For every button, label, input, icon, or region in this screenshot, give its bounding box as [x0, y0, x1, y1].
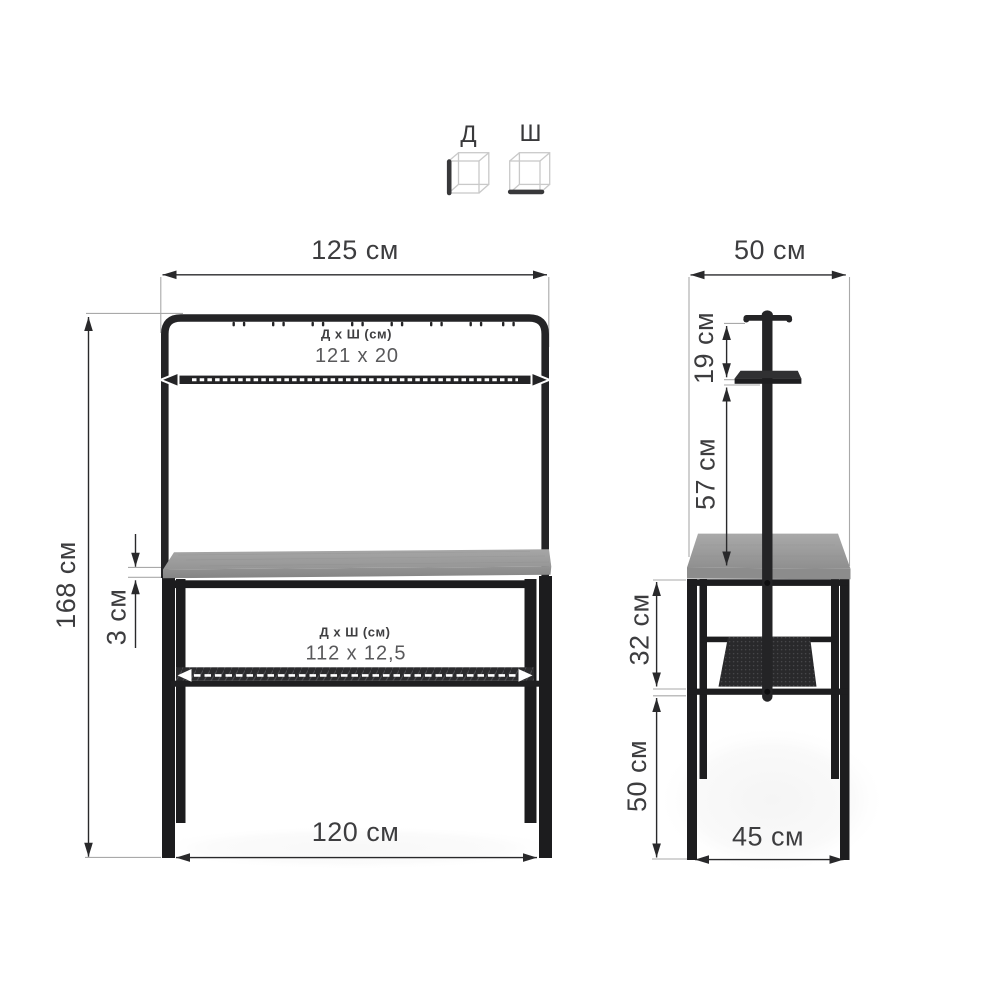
- svg-text:125 см: 125 см: [311, 235, 399, 265]
- svg-text:Д х Ш (см): Д х Ш (см): [320, 624, 391, 639]
- svg-text:120 см: 120 см: [312, 817, 400, 847]
- svg-text:168 см: 168 см: [51, 541, 81, 629]
- svg-text:19 см: 19 см: [689, 312, 719, 384]
- svg-text:50 см: 50 см: [622, 740, 652, 812]
- svg-text:121 x 20: 121 x 20: [315, 345, 399, 367]
- svg-text:50 см: 50 см: [734, 235, 806, 265]
- svg-text:112 x 12,5: 112 x 12,5: [306, 643, 407, 665]
- svg-text:Д х Ш (см): Д х Ш (см): [321, 327, 392, 342]
- svg-text:57 см: 57 см: [691, 438, 721, 510]
- svg-text:Ш: Ш: [520, 120, 542, 147]
- svg-text:32 см: 32 см: [625, 593, 655, 665]
- svg-text:45 см: 45 см: [732, 822, 804, 852]
- svg-text:3 см: 3 см: [102, 589, 132, 646]
- svg-text:Д: Д: [460, 121, 476, 148]
